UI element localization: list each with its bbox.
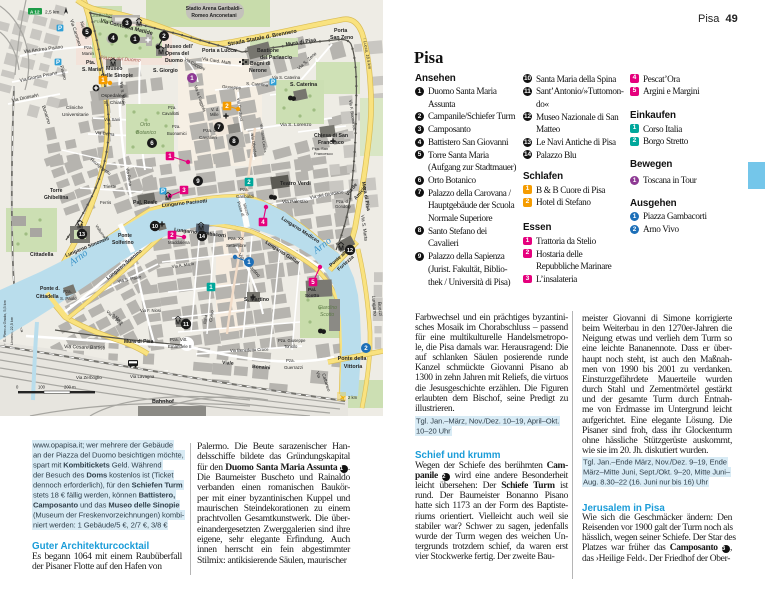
svg-text:Guerrazzi: Guerrazzi — [284, 365, 303, 370]
svg-text:Via Zerboglio: Via Zerboglio — [76, 375, 102, 380]
svg-text:Vittoria: Vittoria — [344, 364, 363, 370]
svg-text:Teatro Verdi: Teatro Verdi — [280, 181, 311, 187]
svg-text:Duomo: Duomo — [165, 58, 183, 64]
svg-text:1: 1 — [133, 36, 137, 43]
svg-text:Solferino: Solferino — [112, 240, 134, 246]
svg-text:Via Lavagna: Via Lavagna — [130, 374, 155, 379]
svg-text:Via S. Lorenzo: Via S. Lorenzo — [280, 122, 312, 128]
svg-text:Via Savi: Via Savi — [104, 117, 120, 122]
svg-text:Cavallotti: Cavallotti — [162, 111, 179, 116]
svg-text:Via Palestro: Via Palestro — [282, 199, 308, 205]
svg-text:Pza.: Pza. — [240, 187, 249, 192]
svg-text:6: 6 — [150, 140, 154, 147]
svg-text:Pza. Vitt.: Pza. Vitt. — [170, 337, 188, 342]
svg-text:4: 4 — [261, 219, 265, 226]
svg-text:14: 14 — [199, 234, 205, 240]
svg-text:Pal.: Pal. — [308, 287, 316, 292]
svg-text:2 km: 2 km — [348, 395, 358, 400]
svg-text:Chiesa di San: Chiesa di San — [314, 133, 348, 139]
svg-text:Mille: Mille — [210, 112, 219, 117]
svg-text:Toniolo: Toniolo — [284, 344, 298, 349]
svg-text:2: 2 — [247, 179, 251, 186]
svg-text:3: 3 — [125, 20, 129, 27]
svg-text:Cittadella: Cittadella — [30, 252, 53, 258]
svg-text:↑ S. Piero a Grado, 5,5 km: ↑ S. Piero a Grado, 5,5 km — [3, 300, 7, 345]
svg-text:7: 7 — [217, 124, 221, 131]
svg-text:M: M — [158, 49, 164, 56]
svg-text:1: 1 — [209, 284, 213, 291]
svg-text:2: 2 — [225, 103, 229, 110]
svg-text:Botanico: Botanico — [136, 130, 156, 136]
svg-text:M: M — [198, 225, 204, 232]
svg-text:Jüdischer: Jüdischer — [91, 13, 113, 19]
svg-text:Pza.: Pza. — [286, 358, 295, 363]
svg-text:Romeo Anconetani: Romeo Anconetani — [191, 13, 237, 19]
svg-text:9: 9 — [196, 178, 200, 185]
svg-text:1: 1 — [190, 75, 194, 82]
svg-text:A 12: A 12 — [30, 9, 40, 14]
svg-text:Bagni di: Bagni di — [250, 61, 271, 67]
svg-text:Friedhof: Friedhof — [94, 19, 112, 25]
svg-text:San Zeno: San Zeno — [330, 35, 353, 41]
svg-text:Orto: Orto — [140, 122, 150, 128]
svg-text:4: 4 — [111, 35, 115, 42]
svg-text:Pza. Giuseppe: Pza. Giuseppe — [278, 338, 306, 343]
svg-text:M: M — [77, 223, 83, 230]
svg-text:1: 1 — [168, 153, 172, 160]
svg-text:M: M — [338, 245, 344, 252]
svg-text:S. Maria: S. Maria — [82, 67, 101, 73]
svg-text:2: 2 — [162, 33, 166, 40]
svg-text:Livorno, 22,5 km: Livorno, 22,5 km — [10, 317, 14, 345]
svg-text:Universitarie: Universitarie — [62, 112, 89, 118]
svg-text:P: P — [161, 189, 165, 195]
svg-text:Scotto: Scotto — [305, 293, 319, 298]
svg-text:Pza.: Pza. — [172, 124, 180, 129]
svg-text:Bahnhof: Bahnhof — [152, 399, 174, 405]
svg-text:Stadio Arena Garibaldi–: Stadio Arena Garibaldi– — [186, 6, 243, 12]
svg-text:M: M — [136, 21, 142, 28]
svg-text:Viale: Viale — [222, 360, 234, 367]
svg-text:P: P — [58, 26, 62, 32]
svg-text:Via F. Niosi: Via F. Niosi — [140, 308, 161, 313]
svg-text:S. Caterina: S. Caterina — [290, 82, 317, 88]
svg-text:Pza.: Pza. — [63, 289, 72, 294]
svg-text:Ghibellina: Ghibellina — [44, 195, 68, 201]
svg-text:S. Paolo: S. Paolo — [60, 296, 77, 301]
svg-text:Trieste: Trieste — [103, 184, 117, 189]
svg-text:Mura di Pisa: Mura di Pisa — [124, 339, 154, 345]
svg-text:5: 5 — [311, 279, 315, 286]
svg-text:Pza. XX: Pza. XX — [228, 236, 244, 241]
svg-text:S. Giorgio: S. Giorgio — [153, 68, 178, 74]
svg-text:Settembre: Settembre — [226, 243, 247, 248]
svg-text:Maddalena: Maddalena — [168, 240, 190, 245]
svg-text:P: P — [271, 80, 275, 86]
svg-text:5: 5 — [85, 29, 89, 36]
svg-text:S. Martino: S. Martino — [244, 297, 269, 303]
svg-text:2,5 km: 2,5 km — [45, 10, 59, 16]
svg-text:Cavalieri: Cavalieri — [199, 135, 217, 140]
svg-text:M: M — [165, 195, 171, 202]
svg-text:Pal. Reale: Pal. Reale — [133, 200, 158, 206]
svg-text:Pta.: Pta. — [86, 60, 96, 66]
svg-text:Pza.: Pza. — [84, 45, 93, 50]
svg-text:1: 1 — [101, 77, 105, 84]
svg-text:Cittadella: Cittadella — [36, 294, 59, 300]
svg-text:M: M — [175, 319, 181, 326]
svg-text:1: 1 — [247, 259, 251, 266]
svg-text:100: 100 — [38, 385, 46, 390]
svg-text:Ponte della: Ponte della — [338, 356, 368, 362]
svg-text:P: P — [56, 60, 60, 66]
svg-text:11: 11 — [183, 322, 189, 328]
svg-text:3: 3 — [182, 187, 186, 194]
svg-text:Porta a Lucca: Porta a Lucca — [202, 48, 236, 54]
svg-text:Ferris: Ferris — [100, 200, 112, 205]
svg-text:12: 12 — [347, 248, 353, 254]
svg-text:8: 8 — [232, 138, 236, 145]
svg-text:Manin: Manin — [82, 51, 95, 56]
svg-text:M: M — [110, 61, 116, 68]
svg-text:13: 13 — [79, 232, 85, 238]
svg-text:Pza.: Pza. — [168, 105, 176, 110]
svg-text:Torre: Torre — [50, 188, 63, 194]
svg-text:Ponte d.: Ponte d. — [40, 286, 60, 292]
svg-text:Museo dell': Museo dell' — [165, 44, 193, 50]
svg-text:Porta: Porta — [334, 28, 347, 34]
svg-text:Giardino: Giardino — [318, 305, 337, 311]
svg-text:2: 2 — [170, 232, 174, 239]
svg-text:Gondole: Gondole — [335, 204, 352, 209]
svg-text:Ponte: Ponte — [118, 233, 132, 239]
svg-text:Nerone: Nerone — [249, 68, 267, 74]
svg-text:Scotto: Scotto — [320, 312, 334, 318]
svg-text:10: 10 — [152, 224, 158, 230]
svg-text:200 m: 200 m — [64, 385, 76, 390]
svg-text:Emanuele II: Emanuele II — [168, 344, 191, 349]
svg-text:Buonamici: Buonamici — [167, 131, 187, 136]
svg-text:Francesco: Francesco — [314, 151, 333, 156]
svg-text:Garibaldi: Garibaldi — [236, 194, 254, 199]
svg-text:Cliniche: Cliniche — [66, 105, 83, 111]
svg-text:Bastione: Bastione — [257, 48, 279, 54]
svg-text:2: 2 — [364, 345, 368, 352]
